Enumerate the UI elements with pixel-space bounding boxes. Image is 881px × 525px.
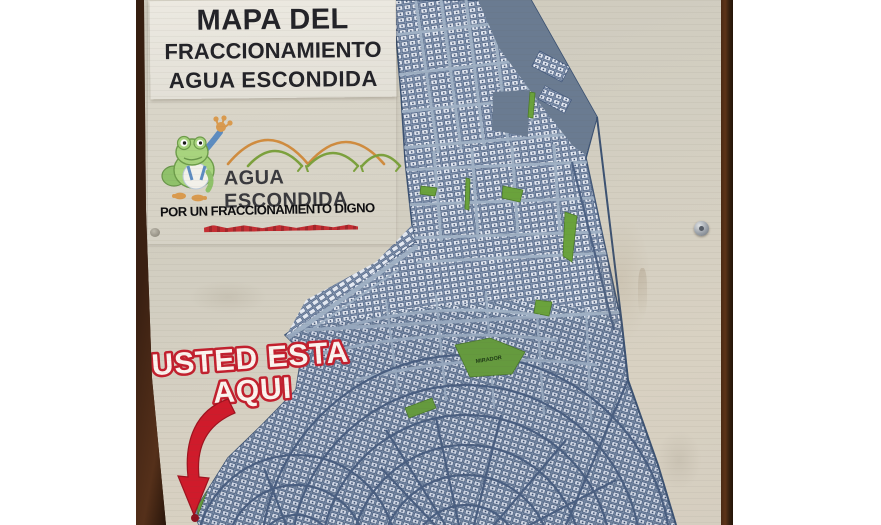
title-line-1: MAPA DEL: [150, 4, 396, 38]
title-line-3: AGUA ESCONDIDA: [150, 64, 396, 96]
screw-icon: [150, 228, 160, 237]
frame-right-edge: [721, 0, 733, 525]
bolt-icon: [694, 221, 709, 236]
title-panel: MAPA DEL FRACCIONAMIENTO AGUA ESCONDIDA: [149, 0, 396, 99]
screenshot-canvas: MIRADOR MAPA DEL FRACCIONAMIENTO AGUA ES…: [0, 0, 881, 525]
you-are-here-arrow-icon: [156, 390, 276, 525]
title-line-2: FRACCIONAMIENTO: [150, 35, 396, 67]
sign-photo: MIRADOR MAPA DEL FRACCIONAMIENTO AGUA ES…: [136, 0, 733, 525]
leap-arcs-icon: [220, 112, 405, 172]
